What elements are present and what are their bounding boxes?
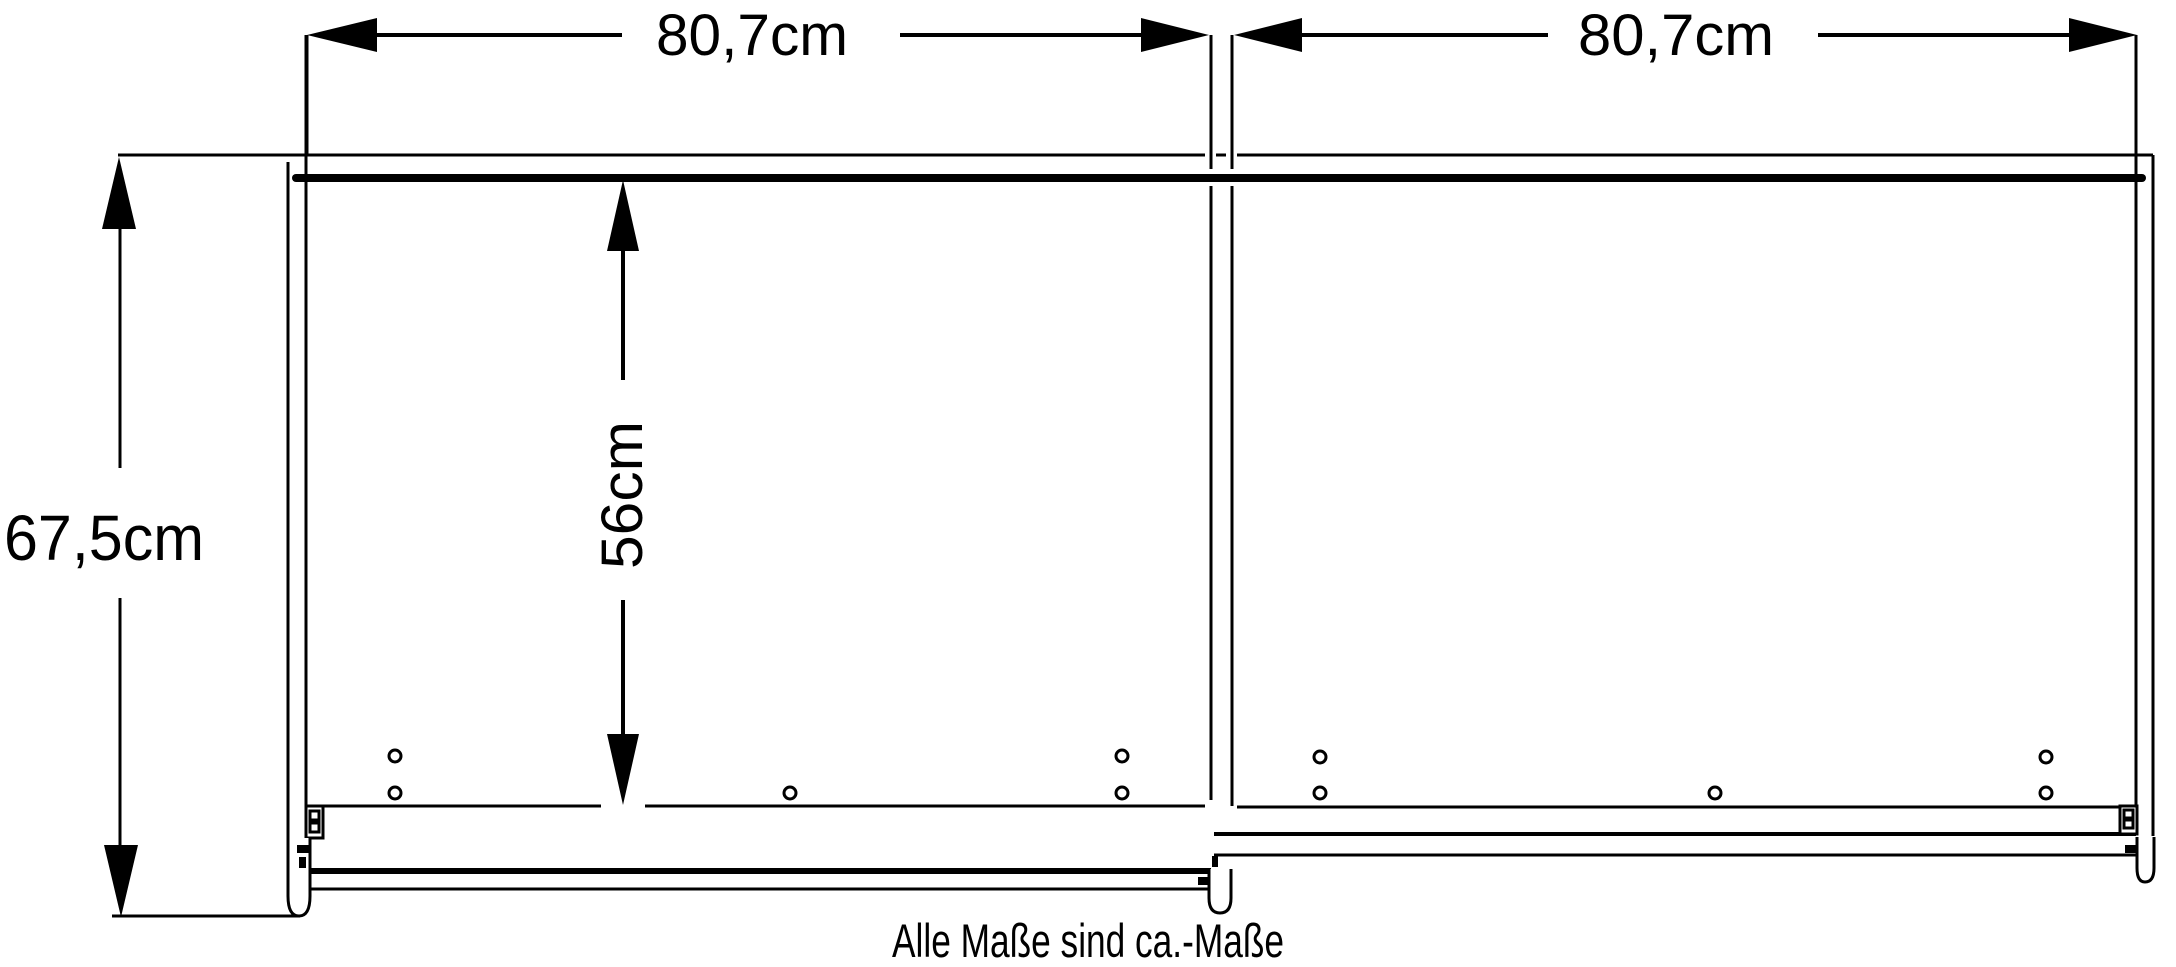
roller-bracket-left — [306, 806, 323, 838]
shelf-pin-hole — [1116, 750, 1128, 762]
arrowhead-left-icon — [1234, 18, 1302, 52]
width-label-right: 80,7cm — [1578, 3, 1774, 68]
shelf-pin-hole — [389, 787, 401, 799]
shelf-pin-hole — [1116, 787, 1128, 799]
interior-height-label: 56cm — [590, 421, 655, 569]
height-label: 67,5cm — [4, 502, 204, 574]
width-label-left: 80,7cm — [656, 3, 848, 68]
door-track-left — [301, 871, 1211, 889]
shelf-pin-hole — [389, 750, 401, 762]
door-guide-middle — [1198, 856, 1231, 913]
door-guide-right — [2125, 837, 2154, 882]
shelf-pin-holes — [389, 750, 2052, 799]
dimension-drawing: 80,7cm 80,7cm 67,5cm 56cm — [0, 0, 2176, 967]
wardrobe-outline — [118, 35, 2153, 860]
door-track-right — [1214, 834, 2136, 855]
caption: Alle Maße sind ca.-Maße — [892, 914, 1284, 967]
arrowhead-down-icon — [607, 734, 639, 805]
arrowhead-up-icon — [607, 180, 639, 251]
arrowhead-up-icon — [102, 157, 136, 229]
shelf-pin-hole — [2040, 751, 2052, 763]
shelf-pin-hole — [2040, 787, 2052, 799]
arrowhead-right-icon — [2069, 18, 2137, 52]
shelf-pin-hole — [784, 787, 796, 799]
height-dimension: 67,5cm — [4, 157, 300, 917]
arrowhead-right-icon — [1141, 18, 1209, 52]
arrowhead-left-icon — [307, 18, 377, 52]
width-dimension-left: 80,7cm — [307, 3, 1209, 155]
roller-bracket-right — [2120, 806, 2137, 834]
shelf-pin-hole — [1314, 787, 1326, 799]
width-dimension-right: 80,7cm — [1234, 3, 2137, 170]
door-guide-left — [288, 838, 311, 916]
shelf-pin-hole — [1709, 787, 1721, 799]
shelf-pin-hole — [1314, 751, 1326, 763]
arrowhead-down-icon — [104, 845, 138, 917]
interior-height-dimension: 56cm — [590, 180, 655, 805]
